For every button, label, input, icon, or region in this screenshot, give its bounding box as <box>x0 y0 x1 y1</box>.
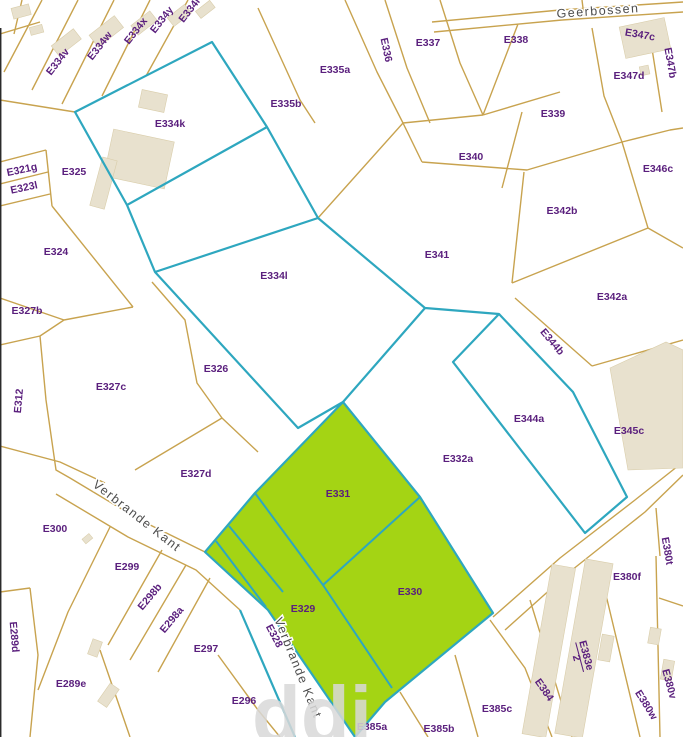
parcel-label-E336[interactable]: E336 <box>378 37 395 64</box>
parcel-label-E344a[interactable]: E344a <box>514 413 545 425</box>
parcel-label-E323l[interactable]: E323l <box>9 179 38 196</box>
parcel-label-E329[interactable]: E329 <box>291 603 316 615</box>
parcel-label-E342a[interactable]: E342a <box>597 291 628 303</box>
parcel-label-E380w[interactable]: E380w <box>632 688 660 723</box>
parcel-label-E334l[interactable]: E334l <box>260 270 288 282</box>
parcel-label-E321g[interactable]: E321g <box>6 161 39 179</box>
parcel-label-E385c[interactable]: E385c <box>482 703 513 715</box>
parcel-label-E380t[interactable]: E380t <box>659 536 676 566</box>
parcel-label-E327d[interactable]: E327d <box>181 468 212 480</box>
cadastral-map[interactable]: GeerbossenVerbrande KantVerbrande Kant E… <box>0 0 683 737</box>
parcel-label-E347d[interactable]: E347d <box>614 70 645 82</box>
parcel-label-E342b[interactable]: E342b <box>547 205 578 217</box>
parcel-label-E299[interactable]: E299 <box>115 561 140 573</box>
watermark-text: ddi <box>252 670 372 737</box>
parcel-label-E289e[interactable]: E289e <box>56 678 87 690</box>
parcel-label-E334v[interactable]: E334v <box>44 46 72 77</box>
parcel-label-E380f[interactable]: E380f <box>613 571 642 583</box>
parcel-label-E330[interactable]: E330 <box>398 586 423 598</box>
parcel-label-E338[interactable]: E338 <box>504 34 529 46</box>
parcel-label-E347b[interactable]: E347b <box>661 47 678 80</box>
parcel-label-E300[interactable]: E300 <box>43 523 68 535</box>
parcel-label-E380v[interactable]: E380v <box>659 668 678 701</box>
parcel-label-E385b[interactable]: E385b <box>424 723 455 735</box>
parcel-label-E332a[interactable]: E332a <box>443 453 474 465</box>
parcel-label-E335b[interactable]: E335b <box>271 98 302 110</box>
parcel-label-E335a[interactable]: E335a <box>320 64 351 76</box>
parcel-label-E337[interactable]: E337 <box>416 37 441 49</box>
greenhouse-e345c <box>610 342 683 470</box>
parcel-label-E327c[interactable]: E327c <box>96 381 127 393</box>
parcel-label-E326[interactable]: E326 <box>204 363 229 375</box>
parcel-label-E340[interactable]: E340 <box>459 151 484 163</box>
parcel-label-E297[interactable]: E297 <box>194 643 219 655</box>
parcel-label-E327b[interactable]: E327b <box>12 305 43 317</box>
street-label-verbrande-kant: Verbrande Kant <box>90 477 184 554</box>
parcel-label-E324[interactable]: E324 <box>44 246 69 258</box>
parcel-label-E331[interactable]: E331 <box>326 488 351 500</box>
parcel-label-E334k[interactable]: E334k <box>155 118 186 130</box>
parcel-label-E339[interactable]: E339 <box>541 108 566 120</box>
map-canvas[interactable]: GeerbossenVerbrande KantVerbrande Kant E… <box>0 0 683 737</box>
parcel-label-E298a[interactable]: E298a <box>158 604 187 635</box>
parcel-label-E312[interactable]: E312 <box>12 388 26 414</box>
street-label-geerbossen: Geerbossen <box>556 1 640 21</box>
parcel-label-E289d[interactable]: E289d <box>7 621 22 653</box>
parcel-label-E345c[interactable]: E345c <box>614 425 645 437</box>
parcel-label-E334x[interactable]: E334x <box>122 15 150 46</box>
parcel-label-E346c[interactable]: E346c <box>643 163 674 175</box>
parcel-label-E341[interactable]: E341 <box>425 249 450 261</box>
parcel-label-E325[interactable]: E325 <box>62 166 87 178</box>
